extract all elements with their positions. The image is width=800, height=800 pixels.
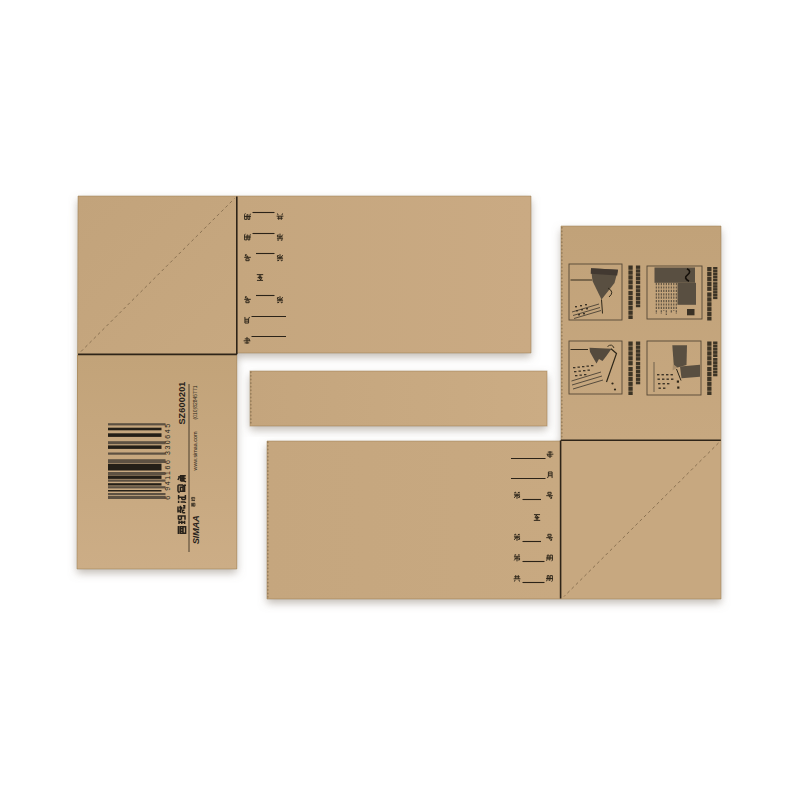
svg-text:www.simaa.com: www.simaa.com bbox=[192, 431, 198, 471]
svg-text:(010)82845771: (010)82845771 bbox=[192, 385, 198, 419]
svg-text:SIMAA: SIMAA bbox=[190, 515, 201, 544]
svg-text:6 941166 330645: 6 941166 330645 bbox=[164, 422, 171, 499]
svg-text:SZ600201: SZ600201 bbox=[177, 381, 187, 424]
